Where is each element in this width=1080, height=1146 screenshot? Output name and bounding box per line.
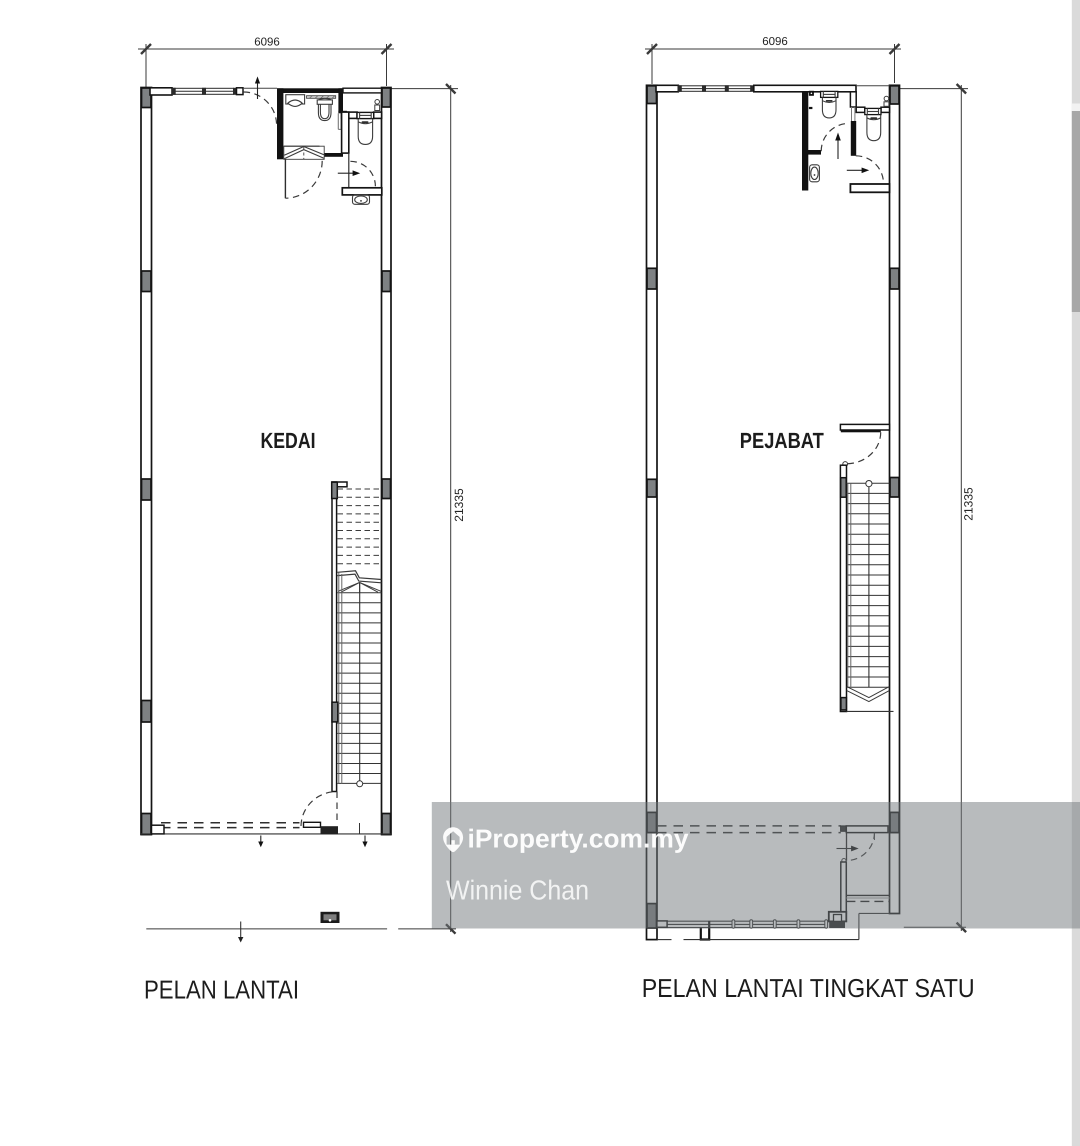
- svg-text:iProperty.com.my: iProperty.com.my: [468, 824, 690, 854]
- svg-text:21335: 21335: [452, 488, 466, 522]
- svg-text:6096: 6096: [762, 36, 788, 48]
- svg-text:21335: 21335: [962, 487, 976, 521]
- svg-text:PELAN LANTAI: PELAN LANTAI: [144, 975, 299, 1005]
- svg-text:6096: 6096: [254, 37, 280, 49]
- svg-text:KEDAI: KEDAI: [261, 428, 316, 453]
- svg-text:Winnie Chan: Winnie Chan: [446, 875, 589, 906]
- svg-text:PELAN LANTAI TINGKAT SATU: PELAN LANTAI TINGKAT SATU: [642, 973, 975, 1003]
- svg-text:PEJABAT: PEJABAT: [740, 428, 824, 453]
